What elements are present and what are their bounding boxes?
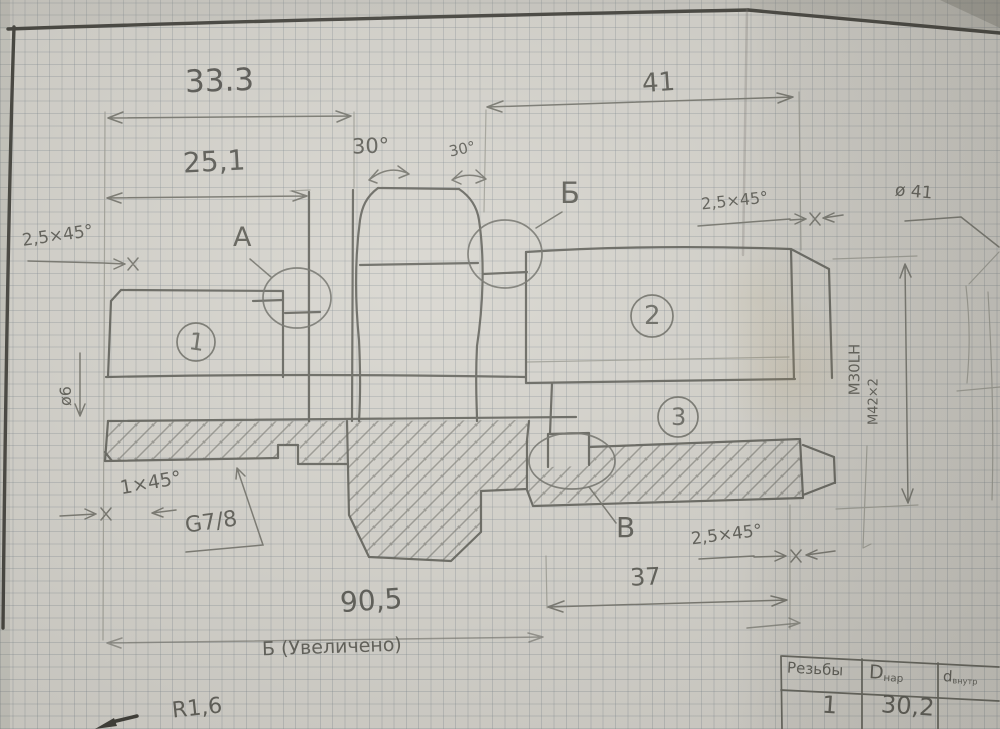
part-3-number: 3 xyxy=(671,405,686,429)
table-header-dnar-main: D xyxy=(868,661,884,684)
view-caption: Б (Увеличено) xyxy=(262,636,402,660)
table-cell-dnar-value: 30,2 xyxy=(880,692,935,720)
table-header-thread: Резьбы xyxy=(787,661,844,679)
angle-left-label: 30° xyxy=(352,135,390,157)
detail-a-label: А xyxy=(233,224,251,251)
radius-label: R1,6 xyxy=(171,695,223,722)
dia-small-label: ø6 xyxy=(58,376,74,416)
corner-arrow xyxy=(95,716,137,729)
table-header-dnar-sub: нар xyxy=(883,672,903,685)
dim-top-width-label: 33.3 xyxy=(184,65,254,98)
dim-inner-width-label: 25,1 xyxy=(182,146,246,177)
dim-right-width-label: 41 xyxy=(641,69,676,97)
dia-right-label: ø 41 xyxy=(894,182,933,202)
table-header-dvn: dвнутр xyxy=(943,669,978,686)
detail-v-label: В xyxy=(616,514,635,542)
part-2-number: 2 xyxy=(644,303,661,329)
thread-m30-label: M30LH xyxy=(848,330,863,410)
table-cell-thread-no: 1 xyxy=(821,692,838,717)
graph-paper-sheet: 33.3 25,1 41 2,5×45° 30° 30° А Б 2,5×45°… xyxy=(0,0,1000,729)
part-number-circles xyxy=(177,295,698,437)
table-header-dnar: Dнар xyxy=(869,663,904,684)
thread-m42-label: М42×2 xyxy=(868,362,881,442)
dim-right-length-label: 37 xyxy=(629,564,661,590)
table-header-dvn-sub: внутр xyxy=(952,675,978,686)
detail-b-label: Б xyxy=(560,179,580,208)
dim-bottom-length-label: 90,5 xyxy=(339,585,403,617)
